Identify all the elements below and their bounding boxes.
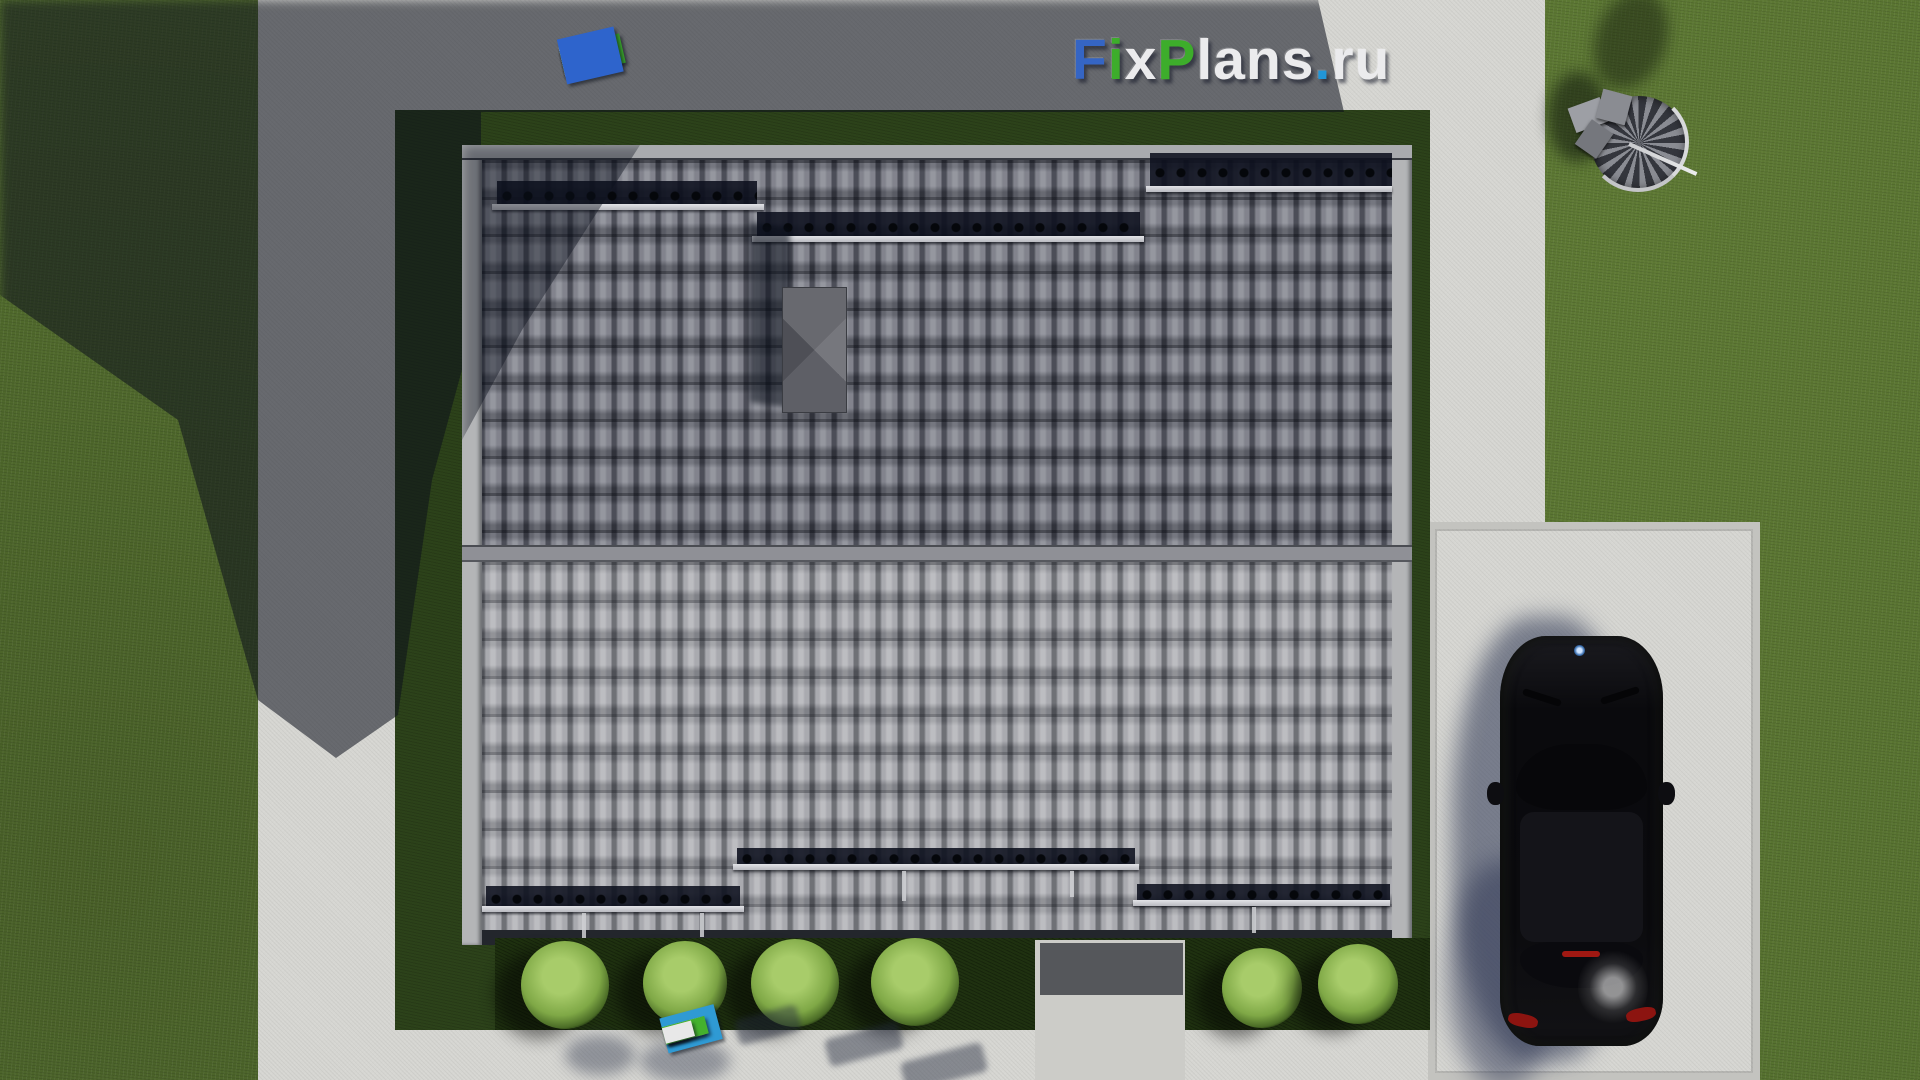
gutter-clip <box>902 871 906 901</box>
logo-letter: . <box>1314 28 1331 92</box>
snow-guard-bar <box>1146 186 1392 192</box>
snow-guard-band <box>486 886 740 908</box>
porch-glass-canopy <box>1040 943 1183 995</box>
gutter-clip <box>582 913 586 941</box>
aerial-render: FixPlans.ru <box>0 0 1920 1080</box>
roof-slope-lower <box>482 562 1392 930</box>
snow-guard-band <box>757 212 1140 238</box>
side-mirror-left <box>1487 782 1504 805</box>
logo-letter: F <box>1072 28 1108 92</box>
logo-letter: s <box>1282 28 1315 92</box>
path-right <box>1425 110 1545 525</box>
snow-guard-bar <box>1133 900 1390 906</box>
side-mirror-right <box>1658 782 1675 805</box>
roof-ridge <box>462 545 1412 562</box>
bush <box>1222 948 1302 1028</box>
bush <box>751 939 839 1027</box>
logo-letter: i <box>1108 28 1125 92</box>
snow-guard-bar <box>733 864 1139 870</box>
gutter-clip <box>700 913 704 937</box>
snow-guard-bar <box>492 204 764 210</box>
hood-crease <box>1600 686 1640 705</box>
snow-guard-bar <box>752 236 1144 242</box>
taillight-left <box>1507 1011 1539 1030</box>
windshield <box>1516 744 1647 810</box>
hood-crease <box>1522 688 1562 707</box>
car-black-sedan <box>1500 636 1663 1046</box>
logo-letter: u <box>1355 28 1391 92</box>
bush <box>871 938 959 1026</box>
logo-letter: x <box>1125 28 1158 92</box>
car-badge <box>1574 645 1585 656</box>
car-roof <box>1520 812 1643 942</box>
bush <box>1318 944 1398 1024</box>
bush <box>521 941 609 1029</box>
chimney <box>783 288 846 412</box>
gutter-clip <box>1252 907 1256 933</box>
logo-letter: P <box>1157 28 1196 92</box>
logo-letter: r <box>1331 28 1354 92</box>
path-bottom <box>258 1029 1432 1080</box>
logo-letter: n <box>1246 28 1282 92</box>
snow-guard-bar <box>482 906 744 912</box>
snow-guard-band <box>1150 153 1392 186</box>
logo-letter: a <box>1213 28 1246 92</box>
spiral-staircase <box>1585 94 1689 194</box>
path-left <box>258 0 395 1080</box>
gutter-clip <box>1070 871 1074 897</box>
brake-light <box>1562 951 1600 957</box>
snow-guard-band <box>497 181 757 206</box>
fixplans-logo: FixPlans.ru <box>1072 30 1432 96</box>
house-roof <box>462 145 1412 945</box>
walkway <box>1035 940 1185 1080</box>
logo-letter: l <box>1196 28 1213 92</box>
